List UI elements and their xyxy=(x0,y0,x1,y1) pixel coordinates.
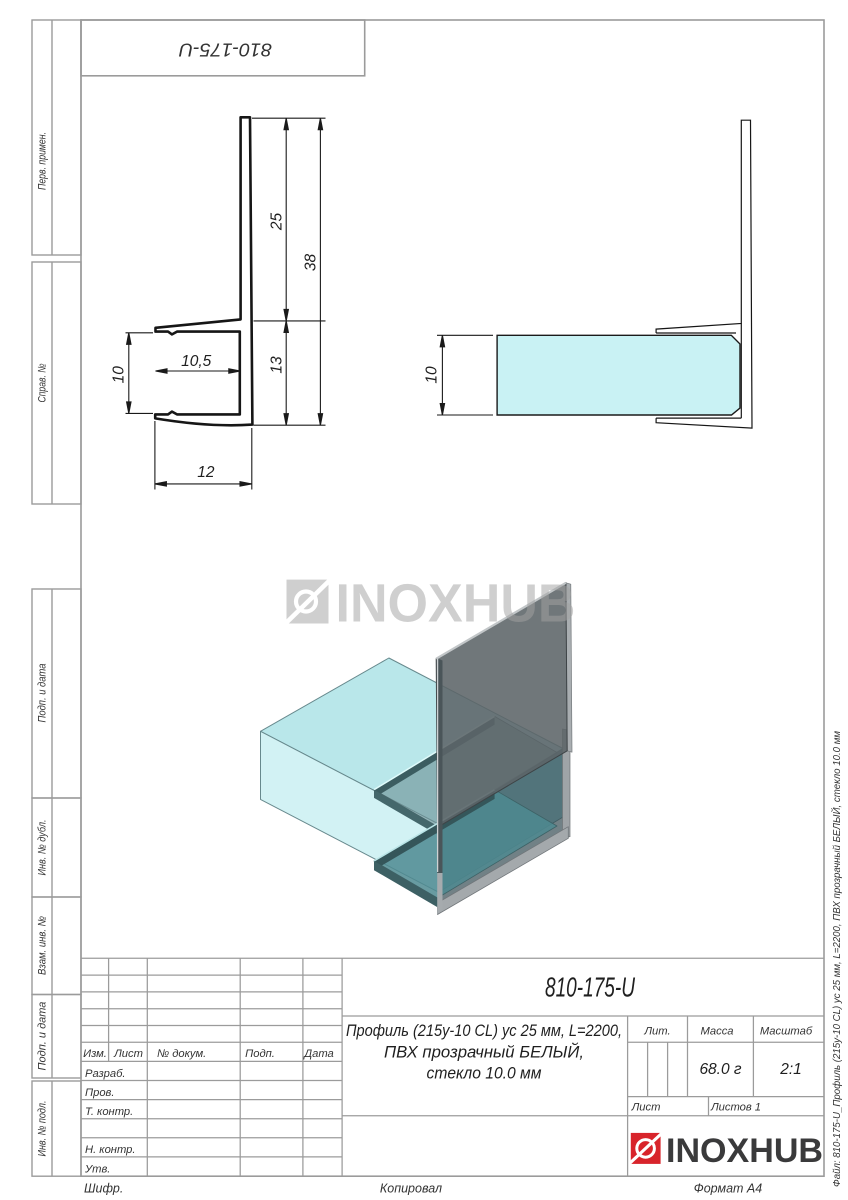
svg-text:Справ. №: Справ. № xyxy=(37,363,49,402)
svg-text:2:1: 2:1 xyxy=(779,1061,802,1078)
svg-text:INOXHUB: INOXHUB xyxy=(336,574,576,634)
svg-text:ПВХ прозрачный БЕЛЫЙ,: ПВХ прозрачный БЕЛЫЙ, xyxy=(384,1043,584,1062)
svg-text:Подп.: Подп. xyxy=(245,1048,275,1060)
svg-text:Инв. № подл.: Инв. № подл. xyxy=(37,1101,49,1157)
svg-text:Утв.: Утв. xyxy=(84,1163,110,1175)
svg-text:Листов 1: Листов 1 xyxy=(710,1102,761,1114)
svg-text:Разраб.: Разраб. xyxy=(85,1068,125,1080)
svg-text:Лист: Лист xyxy=(631,1102,661,1114)
svg-text:10: 10 xyxy=(424,366,441,384)
svg-text:Файл: 810-175-U_Профиль (215у-: Файл: 810-175-U_Профиль (215у-10 CL) ус … xyxy=(830,731,843,1187)
svg-text:Взам. инв. №: Взам. инв. № xyxy=(37,916,49,975)
svg-text:стекло 10.0 мм: стекло 10.0 мм xyxy=(427,1065,542,1083)
svg-text:Масса: Масса xyxy=(700,1026,733,1038)
svg-text:Т. контр.: Т. контр. xyxy=(85,1106,133,1118)
svg-text:12: 12 xyxy=(197,464,215,481)
svg-text:Масштаб: Масштаб xyxy=(760,1026,813,1038)
svg-text:Н. контр.: Н. контр. xyxy=(85,1144,135,1156)
svg-text:Перв. примен.: Перв. примен. xyxy=(37,132,49,190)
svg-text:Пров.: Пров. xyxy=(85,1087,115,1099)
svg-text:10,5: 10,5 xyxy=(181,353,212,370)
svg-text:Дата: Дата xyxy=(302,1048,334,1060)
svg-text:Формат А4: Формат А4 xyxy=(694,1182,762,1196)
svg-text:Копировал: Копировал xyxy=(380,1182,442,1196)
svg-text:810-175-U: 810-175-U xyxy=(545,972,636,1003)
svg-text:810-175-U: 810-175-U xyxy=(178,40,272,60)
svg-text:№ докум.: № докум. xyxy=(157,1048,206,1060)
svg-text:13: 13 xyxy=(269,356,286,374)
svg-text:Профиль (215у-10 CL) ус 25 мм,: Профиль (215у-10 CL) ус 25 мм, L=2200, xyxy=(346,1022,622,1040)
svg-text:68.0 г: 68.0 г xyxy=(699,1061,741,1078)
svg-text:Подп. и дата: Подп. и дата xyxy=(37,664,49,723)
svg-text:Шифр.: Шифр. xyxy=(84,1182,123,1196)
svg-text:Лист: Лист xyxy=(113,1048,143,1060)
svg-text:10: 10 xyxy=(111,366,128,384)
svg-text:25: 25 xyxy=(269,213,286,232)
svg-text:Лит.: Лит. xyxy=(643,1026,670,1038)
svg-text:Подп. и дата: Подп. и дата xyxy=(37,1002,49,1071)
svg-text:Инв. № дубл.: Инв. № дубл. xyxy=(37,820,49,876)
svg-text:Изм.: Изм. xyxy=(83,1048,107,1060)
svg-text:INOXHUB: INOXHUB xyxy=(666,1132,823,1170)
svg-text:38: 38 xyxy=(303,254,320,272)
